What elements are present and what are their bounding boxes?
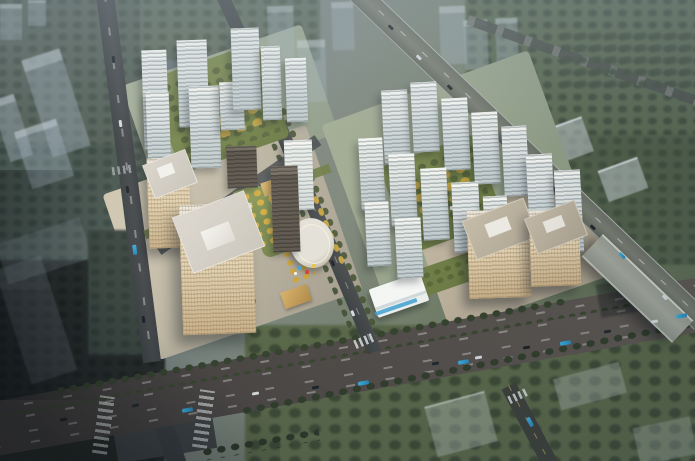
residential-tower [420, 167, 450, 240]
residential-tower [410, 81, 440, 152]
residential-tower [189, 86, 222, 169]
ghost-cube [0, 4, 22, 40]
residential-tower [388, 153, 418, 226]
mid-rise-dark [226, 145, 257, 188]
plaza-dot [298, 266, 302, 270]
residential-tower [471, 111, 501, 184]
aerial-development-rendering [0, 0, 695, 461]
residential-tower [285, 58, 308, 123]
ghost-cube [28, 0, 46, 26]
residential-tower [364, 201, 391, 266]
residential-tower [441, 97, 471, 170]
plaza-dot [312, 264, 316, 268]
residential-tower [394, 217, 423, 278]
ghost-tower [331, 2, 355, 51]
residential-tower [358, 137, 386, 210]
mid-rise-dark [271, 166, 301, 253]
plaza-dot [305, 270, 309, 274]
residential-tower [261, 46, 283, 121]
trees-over-road [560, 30, 695, 90]
residential-tower [231, 28, 262, 111]
plaza-dot [294, 272, 297, 275]
